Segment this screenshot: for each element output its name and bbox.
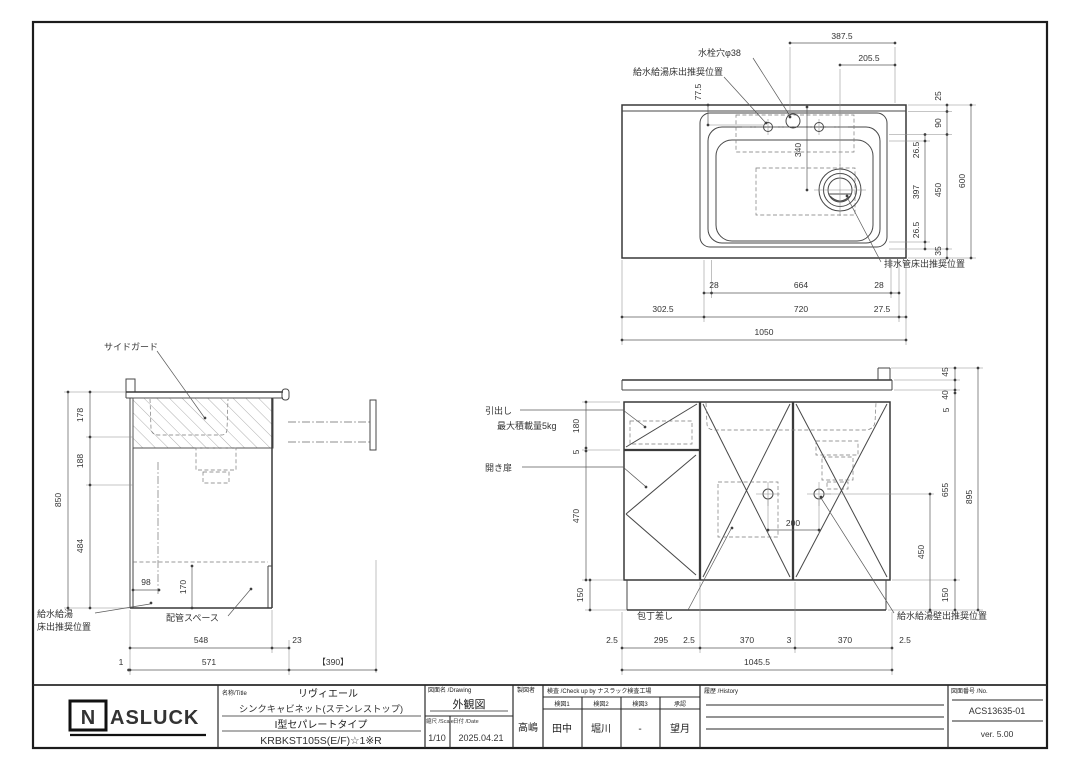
label-hinged-door: 開き扉 — [485, 462, 512, 473]
label-side-guard: サイドガード — [104, 342, 158, 352]
scale-value: 1/10 — [428, 733, 446, 743]
dim-r5: 5 — [941, 407, 951, 412]
dim-98: 98 — [141, 577, 151, 587]
dim-1050: 1050 — [755, 327, 774, 337]
label-drawer: 引出し — [485, 405, 512, 416]
logo-n: N — [81, 707, 95, 729]
date-label: 日付 /Date — [453, 717, 479, 725]
dim-600: 600 — [957, 174, 967, 188]
dim-188: 188 — [75, 454, 85, 468]
dim-40: 40 — [940, 390, 950, 400]
check-col-3: 検図3 — [632, 700, 648, 708]
dim-r150: 150 — [940, 588, 950, 602]
dim-470: 470 — [571, 509, 581, 523]
sink-section-hatch — [133, 398, 273, 448]
dim-28a: 28 — [709, 280, 719, 290]
label-supply-floor: 給水給湯床出推奨位置 — [633, 66, 723, 77]
dim-77: 77.5 — [693, 83, 703, 100]
dim-484: 484 — [75, 539, 85, 553]
check-val-3: - — [638, 724, 641, 735]
dim-571: 571 — [202, 657, 216, 667]
dim-90: 90 — [933, 118, 943, 128]
dim-450-front: 450 — [916, 545, 926, 559]
dim-387: 387.5 — [831, 31, 853, 41]
dim-200: 200 — [786, 518, 800, 528]
check-col-4: 承認 — [674, 700, 686, 708]
dim-l150: 150 — [575, 588, 585, 602]
dim-26a: 26.5 — [911, 141, 921, 158]
cad-drawing-sheet: 387.5 205.5 77.5 340 25 90 26.5 397 26.5… — [0, 0, 1080, 764]
dim-895: 895 — [964, 490, 974, 504]
dim-205: 205.5 — [858, 53, 880, 63]
label-supply-floor-1: 給水給湯 — [37, 608, 73, 619]
check-val-4: 望月 — [670, 722, 690, 735]
dim-1: 1 — [119, 657, 124, 667]
scale-label: 縮尺 /Scale — [426, 717, 454, 725]
dim-720: 720 — [794, 304, 808, 314]
dim-664: 664 — [794, 280, 808, 290]
label-faucet-hole: 水栓穴φ38 — [698, 47, 741, 58]
name-value: リヴィエール — [298, 687, 358, 700]
no-label: 図面番号 /No. — [951, 688, 988, 695]
dim-340: 340 — [793, 143, 803, 157]
drawing-label: 図面名 /Drawing — [428, 686, 471, 694]
name-line3: I型セパレートタイプ — [275, 718, 368, 731]
dim-l5: 5 — [571, 449, 581, 454]
dim-180: 180 — [571, 419, 581, 433]
dim-370b: 370 — [838, 635, 852, 645]
dim-450: 450 — [933, 183, 943, 197]
sheet-border — [33, 22, 1047, 748]
dim-45: 45 — [940, 367, 950, 377]
dim-302: 302.5 — [652, 304, 674, 314]
drafter-label: 製図者 — [517, 686, 535, 694]
dim-25b: 2.5 — [683, 635, 695, 645]
dim-1045: 1045.5 — [744, 657, 770, 667]
dim-28b: 28 — [874, 280, 884, 290]
dim-397: 397 — [911, 185, 921, 199]
check-label: 検査 /Check up by ナスラック検査工場 — [547, 687, 651, 695]
dim-370a: 370 — [740, 635, 754, 645]
dim-390: 【390】 — [317, 657, 348, 667]
logo-text: ASLUCK — [110, 707, 199, 729]
drawing-value: 外観図 — [453, 697, 486, 711]
dim-25: 25 — [933, 91, 943, 101]
dim-850: 850 — [53, 493, 63, 507]
dim-27: 27.5 — [874, 304, 891, 314]
name-line4: KRBKST105S(E/F)☆1※R — [260, 735, 382, 747]
dim-295: 295 — [654, 635, 668, 645]
dim-26b: 26.5 — [911, 221, 921, 238]
dim-25a: 2.5 — [606, 635, 618, 645]
no-value: ACS13635-01 — [969, 706, 1026, 716]
dim-548: 548 — [194, 635, 208, 645]
name-line2: シンクキャビネット(ステンレストップ) — [239, 704, 403, 714]
check-col-1: 検図1 — [554, 700, 570, 708]
check-col-2: 検図2 — [593, 700, 609, 708]
label-drawer-load: 最大積載量5kg — [497, 420, 557, 431]
label-supply-wall: 給水給湯壁出推奨位置 — [897, 610, 987, 621]
check-val-2: 堀川 — [591, 723, 611, 735]
check-val-1: 田中 — [552, 722, 572, 735]
history-label: 履歴 /History — [704, 688, 738, 695]
label-drain-floor: 排水管床出推奨位置 — [884, 258, 965, 269]
version: ver. 5.00 — [981, 729, 1014, 739]
dim-23: 23 — [292, 635, 302, 645]
dim-170: 170 — [178, 580, 188, 594]
label-pipe-space: 配管スペース — [166, 612, 219, 623]
dim-3: 3 — [787, 635, 792, 645]
dim-25c: 2.5 — [899, 635, 911, 645]
dim-178: 178 — [75, 408, 85, 422]
label-knife-holder: 包丁差し — [637, 610, 673, 621]
date-value: 2025.04.21 — [458, 733, 503, 743]
name-label: 名称/Title — [222, 689, 247, 697]
dim-655: 655 — [940, 483, 950, 497]
dim-35: 35 — [933, 246, 943, 256]
label-supply-floor-2: 床出推奨位置 — [37, 621, 91, 632]
drafter-value: 高嶋 — [518, 721, 538, 734]
